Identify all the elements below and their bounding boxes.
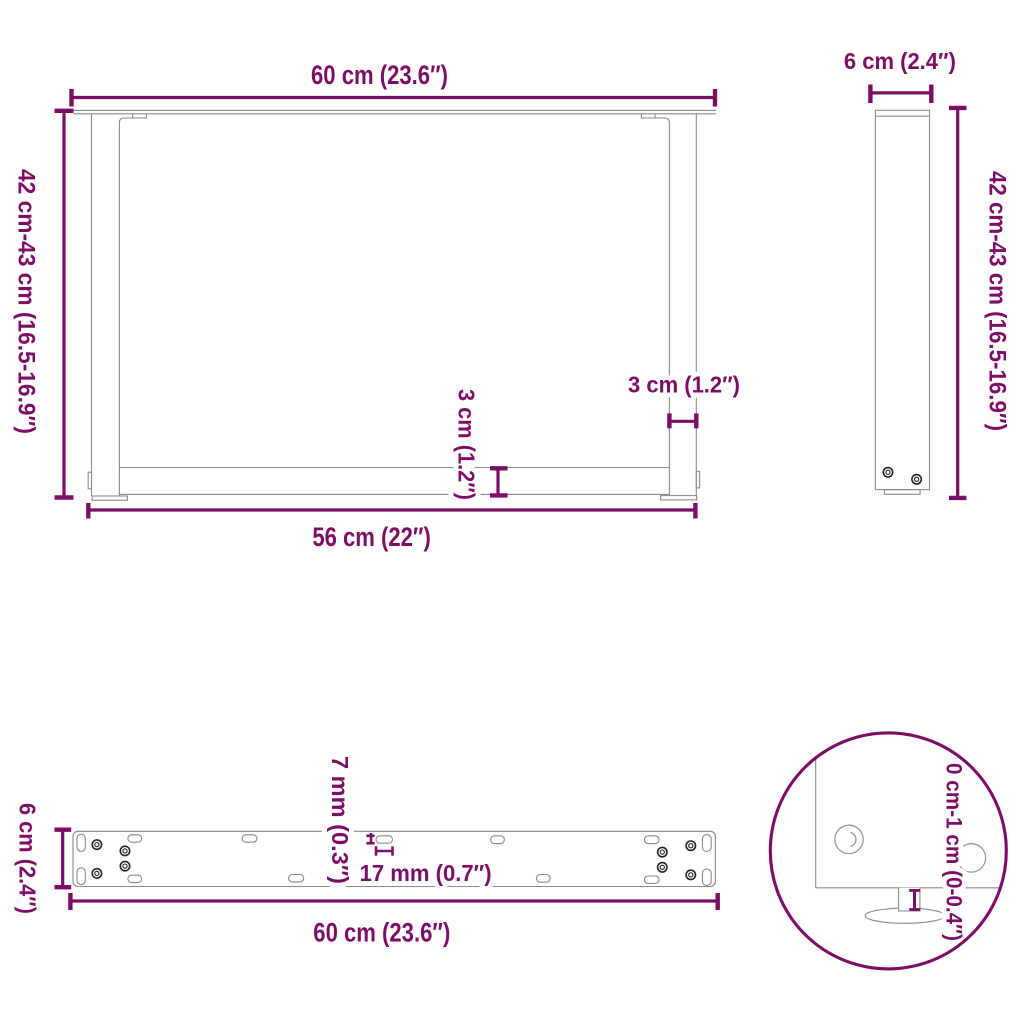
svg-text:42 cm-43 cm (16.5-16.9″): 42 cm-43 cm (16.5-16.9″) — [983, 171, 1010, 431]
svg-text:7 mm (0.3″): 7 mm (0.3″) — [327, 756, 353, 884]
svg-text:6 cm (2.4″): 6 cm (2.4″) — [15, 803, 41, 914]
svg-text:3 cm (1.2″): 3 cm (1.2″) — [628, 371, 740, 397]
svg-text:0 cm-1 cm (0-0.4″): 0 cm-1 cm (0-0.4″) — [942, 763, 967, 941]
svg-text:3 cm (1.2″): 3 cm (1.2″) — [454, 389, 480, 500]
svg-text:6 cm (2.4″): 6 cm (2.4″) — [844, 48, 956, 74]
svg-text:17 mm (0.7″): 17 mm (0.7″) — [360, 860, 492, 886]
svg-text:60 cm (23.6″): 60 cm (23.6″) — [313, 918, 450, 948]
svg-text:56 cm (22″): 56 cm (22″) — [312, 522, 431, 552]
svg-text:42 cm-43 cm (16.5-16.9″): 42 cm-43 cm (16.5-16.9″) — [13, 169, 40, 434]
svg-text:60 cm (23.6″): 60 cm (23.6″) — [311, 60, 448, 90]
